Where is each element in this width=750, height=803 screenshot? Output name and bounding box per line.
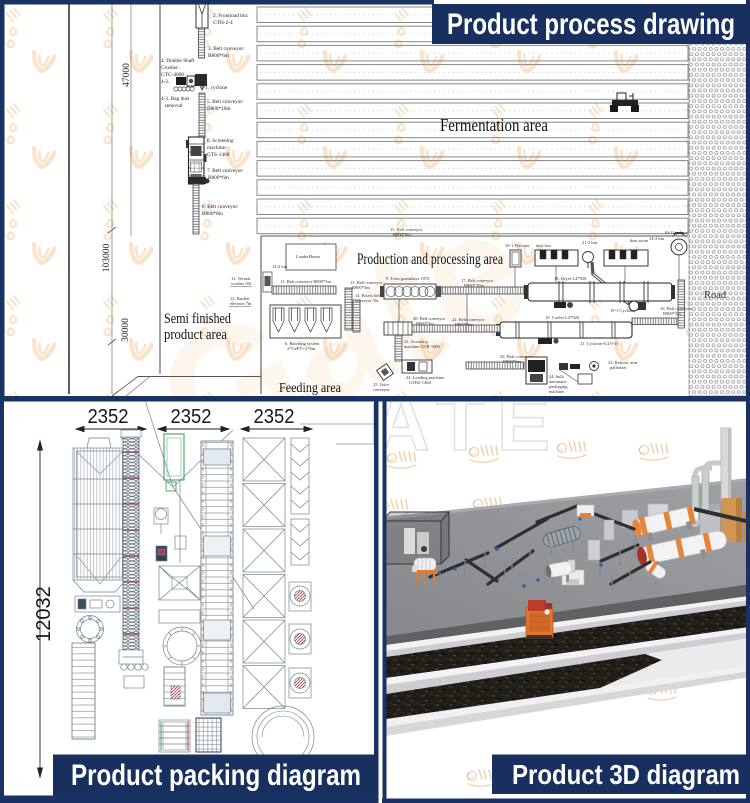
svg-text:4-3. Bag dust: 4-3. Bag dust bbox=[161, 96, 190, 102]
svg-text:B800*5m: B800*5m bbox=[503, 359, 521, 364]
svg-text:10-12 yclone: 10-12 yclone bbox=[664, 230, 688, 235]
svg-text:Production and processing area: Production and processing area bbox=[357, 251, 503, 268]
svg-text:machine: machine bbox=[549, 389, 564, 394]
svg-text:4-2.: 4-2. bbox=[161, 79, 169, 85]
svg-text:103000: 103000 bbox=[102, 244, 112, 273]
svg-text:2352: 2352 bbox=[171, 406, 212, 428]
svg-text:product area: product area bbox=[164, 327, 227, 343]
svg-text:GTB2-1464: GTB2-1464 bbox=[409, 380, 431, 385]
svg-text:47000: 47000 bbox=[122, 63, 132, 87]
svg-text:removal: removal bbox=[165, 103, 183, 109]
svg-text:19-1 Cyclone: 19-1 Cyclone bbox=[610, 308, 634, 313]
svg-text:conveyor: conveyor bbox=[373, 387, 390, 392]
svg-text:2*GePY+2*6m: 2*GePY+2*6m bbox=[287, 346, 316, 351]
svg-text:2352: 2352 bbox=[254, 406, 295, 428]
svg-text:Product 3D diagram: Product 3D diagram bbox=[512, 759, 740, 790]
svg-text:8. Belt conveyor:: 8. Belt conveyor: bbox=[202, 204, 239, 210]
svg-text:palletizer: palletizer bbox=[610, 365, 627, 370]
svg-text:elevator 7m: elevator 7m bbox=[230, 301, 252, 306]
svg-text:4-1. cyclone: 4-1. cyclone bbox=[201, 85, 228, 91]
svg-text:GTS-1460: GTS-1460 bbox=[207, 152, 230, 158]
svg-text:B800*5m: B800*5m bbox=[663, 311, 681, 316]
svg-text:12-2 bin: 12-2 bin bbox=[272, 264, 288, 269]
svg-text:18. Dryer L4*920: 18. Dryer L4*920 bbox=[554, 276, 587, 281]
svg-text:B800*6m: B800*6m bbox=[208, 53, 230, 59]
svg-text:B800*10m: B800*10m bbox=[464, 283, 485, 288]
svg-text:Crusher:: Crusher: bbox=[161, 65, 180, 71]
svg-text:B800*8m: B800*8m bbox=[202, 211, 224, 217]
svg-text:2352: 2352 bbox=[88, 406, 129, 428]
svg-text:machine:: machine: bbox=[207, 145, 227, 151]
svg-text:dust box: dust box bbox=[536, 243, 552, 248]
svg-text:30000: 30000 bbox=[121, 318, 131, 342]
svg-text:9. Twin granulator 1070: 9. Twin granulator 1070 bbox=[386, 276, 430, 281]
svg-text:Feeding area: Feeding area bbox=[279, 381, 342, 396]
svg-text:21. Cyclone+GL9-15: 21. Cyclone+GL9-15 bbox=[580, 341, 619, 346]
svg-text:12032: 12032 bbox=[33, 586, 55, 642]
svg-text:Product packing diagram: Product packing diagram bbox=[71, 759, 361, 792]
svg-text:7. Belt conveyor:: 7. Belt conveyor: bbox=[207, 168, 244, 174]
svg-text:B800*10m: B800*10m bbox=[207, 106, 231, 112]
svg-text:21-2 bin: 21-2 bin bbox=[582, 240, 598, 245]
svg-text:LoaderHouse: LoaderHouse bbox=[296, 254, 320, 259]
svg-text:B800*8m: B800*8m bbox=[393, 232, 411, 237]
svg-text:10-1 Elevator: 10-1 Elevator bbox=[505, 243, 530, 248]
svg-text:B800*5m: B800*5m bbox=[352, 285, 370, 290]
svg-text:13. Belt conveyor B800*5m: 13. Belt conveyor B800*5m bbox=[280, 279, 331, 284]
svg-text:B800*5m: B800*5m bbox=[455, 322, 473, 327]
svg-text:4. Double Shaft: 4. Double Shaft bbox=[161, 57, 195, 64]
svg-text:B800*6m: B800*6m bbox=[208, 175, 230, 181]
svg-text:dust room: dust room bbox=[630, 238, 649, 243]
svg-text:machine GTB-1600: machine GTB-1600 bbox=[404, 344, 441, 349]
svg-text:Road: Road bbox=[704, 290, 727, 301]
svg-text:Fermentation area: Fermentation area bbox=[440, 115, 548, 135]
svg-text:Semi finished: Semi finished bbox=[164, 311, 232, 327]
svg-text:conveyor 7m: conveyor 7m bbox=[355, 298, 379, 303]
svg-text:19. Cooler L4*920: 19. Cooler L4*920 bbox=[545, 315, 580, 320]
svg-text:6. Screening: 6. Screening bbox=[207, 138, 234, 144]
svg-text:5. Belt conveyor:: 5. Belt conveyor: bbox=[207, 99, 244, 105]
svg-text:2. Frontload bin:: 2. Frontload bin: bbox=[213, 13, 249, 19]
svg-text:Product process drawing: Product process drawing bbox=[447, 8, 735, 41]
svg-text:3. Belt conveyor:: 3. Belt conveyor: bbox=[208, 46, 245, 52]
svg-text:crusher 30t: crusher 30t bbox=[231, 281, 252, 286]
svg-text:14-2 bin: 14-2 bin bbox=[649, 236, 665, 241]
svg-text:GTH-2-4: GTH-2-4 bbox=[213, 20, 233, 26]
